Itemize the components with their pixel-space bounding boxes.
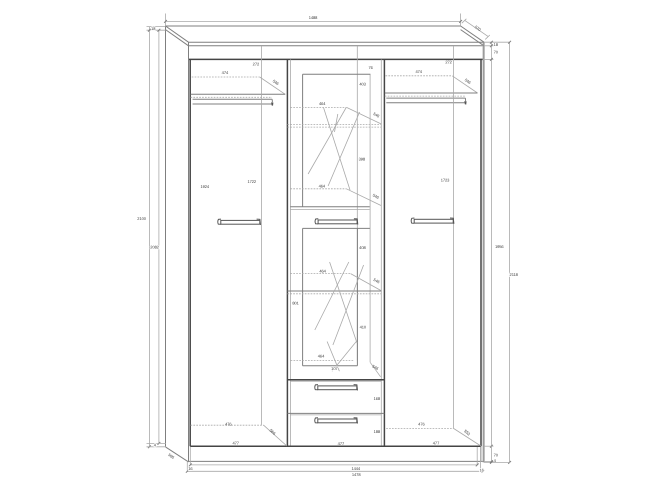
svg-text:1723: 1723 <box>441 178 450 183</box>
svg-text:477: 477 <box>338 441 345 446</box>
svg-text:474: 474 <box>415 69 422 74</box>
svg-text:16: 16 <box>188 466 193 471</box>
svg-text:272: 272 <box>445 60 452 65</box>
svg-text:464: 464 <box>318 354 325 359</box>
svg-text:408: 408 <box>359 245 366 250</box>
svg-text:546: 546 <box>372 192 381 200</box>
svg-text:464: 464 <box>319 184 326 189</box>
svg-text:1924: 1924 <box>201 184 210 189</box>
svg-text:546: 546 <box>272 78 281 86</box>
svg-text:410: 410 <box>360 325 367 330</box>
svg-text:2118: 2118 <box>510 272 519 277</box>
svg-text:570: 570 <box>474 24 483 32</box>
svg-text:272: 272 <box>253 61 260 66</box>
svg-text:801: 801 <box>292 301 299 306</box>
svg-text:107: 107 <box>331 366 338 371</box>
svg-text:168: 168 <box>374 396 381 401</box>
svg-text:188: 188 <box>374 429 381 434</box>
svg-text:474: 474 <box>222 70 229 75</box>
svg-text:476: 476 <box>225 422 232 427</box>
svg-text:1956: 1956 <box>495 244 504 249</box>
svg-text:546: 546 <box>373 277 382 285</box>
svg-text:403: 403 <box>359 82 366 87</box>
svg-text:398: 398 <box>359 157 366 162</box>
svg-text:2100: 2100 <box>137 216 146 221</box>
svg-text:2082: 2082 <box>150 245 159 250</box>
svg-text:464: 464 <box>319 269 326 274</box>
svg-text:566: 566 <box>269 428 278 437</box>
svg-text:1444: 1444 <box>352 466 361 471</box>
svg-text:477: 477 <box>232 441 239 446</box>
svg-text:546: 546 <box>372 111 381 119</box>
svg-text:1478: 1478 <box>352 472 361 477</box>
svg-text:76: 76 <box>368 65 373 70</box>
svg-text:476: 476 <box>418 422 425 427</box>
svg-text:70: 70 <box>494 452 499 457</box>
svg-text:1722: 1722 <box>248 179 257 184</box>
svg-text:477: 477 <box>433 441 440 446</box>
svg-text:70: 70 <box>494 49 499 54</box>
svg-text:546: 546 <box>371 363 380 371</box>
svg-text:1488: 1488 <box>309 15 318 20</box>
svg-text:464: 464 <box>319 101 326 106</box>
